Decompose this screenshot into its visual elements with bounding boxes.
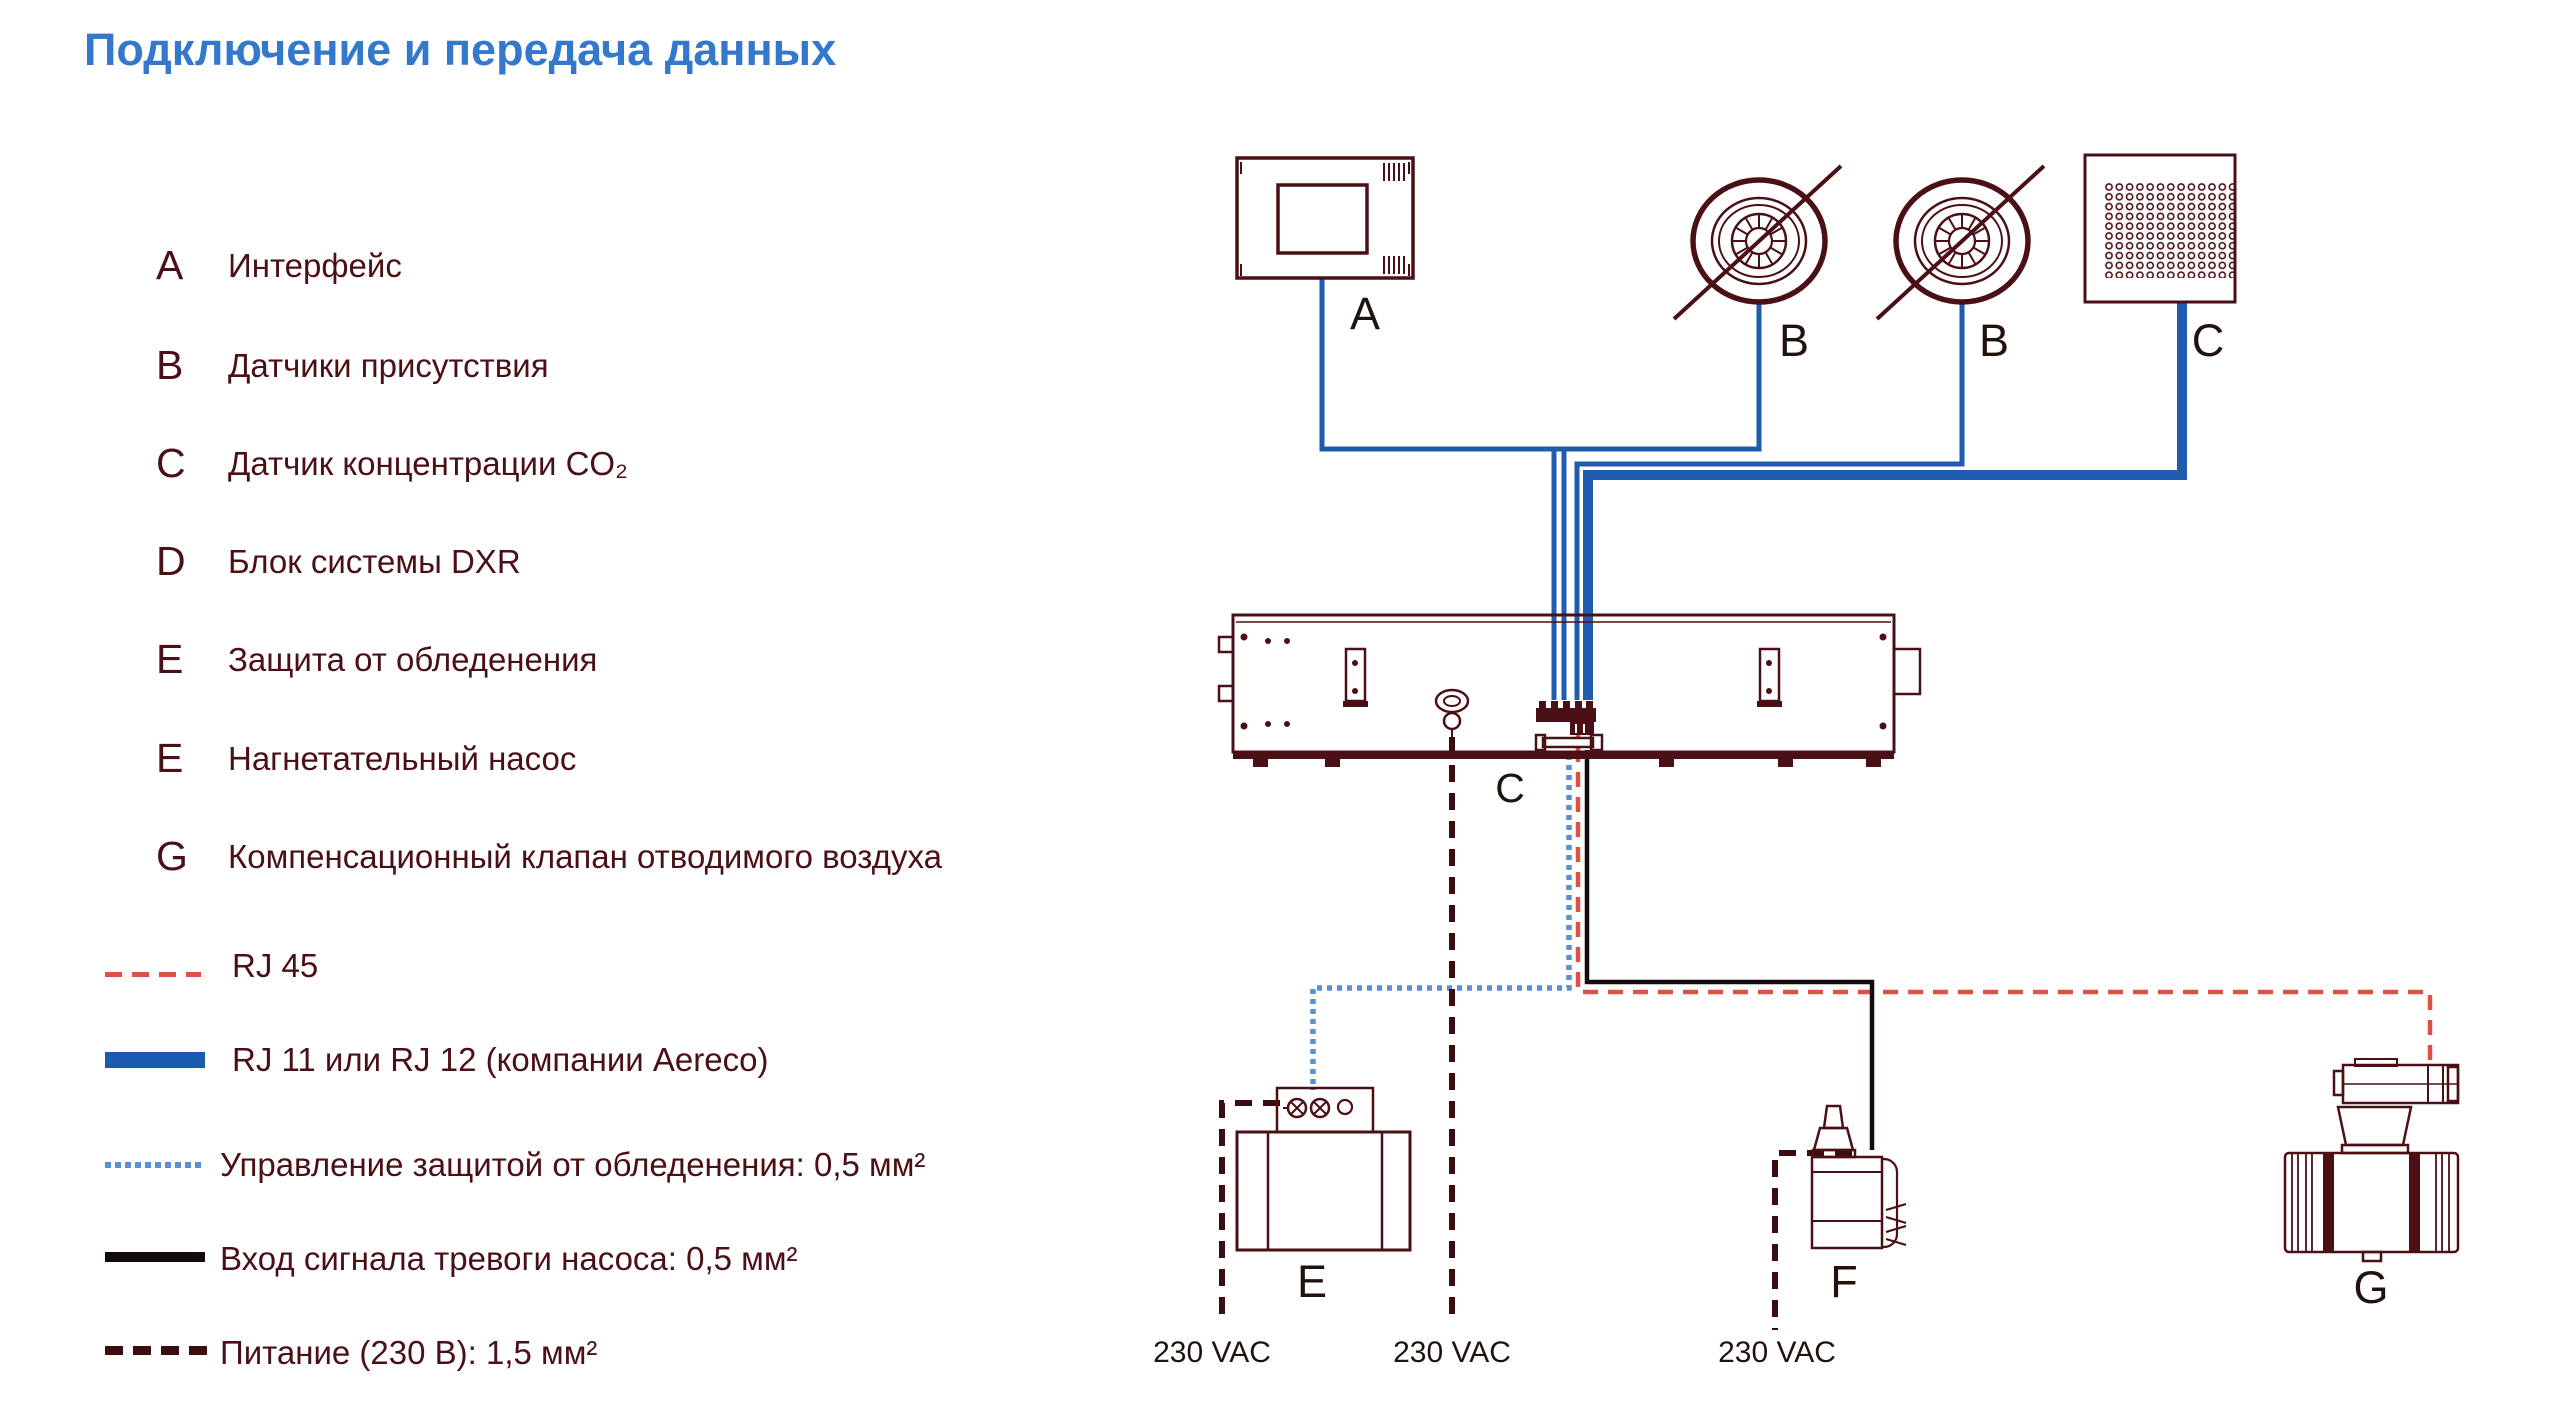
frost-protection-device: [1237, 1088, 1410, 1250]
page: Подключение и передача данных A Интерфей…: [0, 0, 2560, 1411]
wire-rj11-interface: [1322, 278, 1759, 700]
co2-sensor: [2085, 155, 2236, 302]
terminal-block: [1536, 701, 1602, 750]
vac-label-pump: 230 VAC: [1718, 1336, 1836, 1370]
wire-power-frost: [1222, 1103, 1280, 1318]
vac-label-frost: 230 VAC: [1153, 1336, 1271, 1370]
pump-label: F: [1830, 1256, 1858, 1308]
presence-sensor-2: [1877, 166, 2044, 319]
interface-device: [1237, 158, 1413, 278]
mounting-bracket-right: [1757, 649, 1782, 707]
wire-rj11-presence2: [1577, 303, 1962, 700]
lock-icon: [1436, 690, 1468, 737]
co2-sensor-label: C: [2192, 315, 2225, 367]
wiring-diagram: [0, 0, 2560, 1411]
interface-label: A: [1350, 288, 1380, 340]
pump-device: [1812, 1106, 1906, 1248]
wire-pump-alarm: [1587, 750, 1872, 1150]
wire-rj11-co2: [1588, 302, 2182, 700]
valve-label: G: [2353, 1262, 2388, 1314]
presence-sensor1-label: B: [1779, 315, 1809, 367]
presence-sensor2-label: B: [1979, 315, 2009, 367]
compensation-valve-device: [2285, 1059, 2458, 1261]
wire-frost-control: [1313, 755, 1569, 1090]
vac-label-unit: 230 VAC: [1393, 1336, 1511, 1370]
frost-protection-label: E: [1297, 1256, 1327, 1308]
wire-rj45: [1578, 722, 2430, 1062]
presence-sensor-1: [1674, 166, 1841, 319]
dxr-unit-label: C: [1495, 765, 1525, 812]
mounting-bracket-left: [1343, 649, 1368, 707]
dxr-unit: [1219, 615, 1920, 767]
